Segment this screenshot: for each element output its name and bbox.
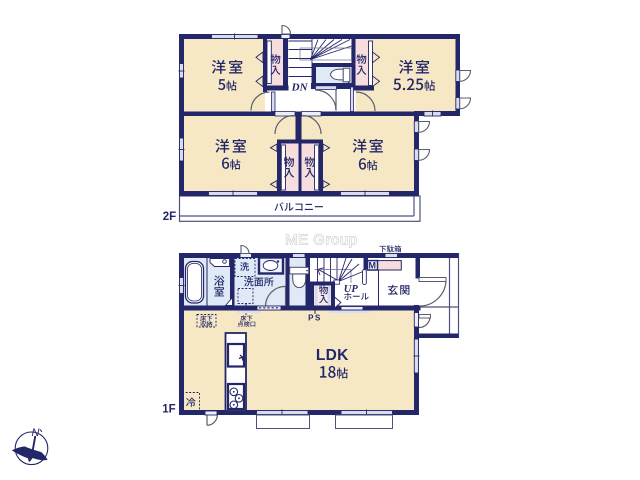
svg-text:LDK: LDK <box>316 347 349 364</box>
svg-text:DN: DN <box>291 82 309 94</box>
svg-text:ME Group: ME Group <box>285 232 357 249</box>
svg-text:1F: 1F <box>162 404 175 416</box>
svg-text:PS: PS <box>308 314 322 323</box>
svg-text:2F: 2F <box>163 211 176 223</box>
svg-text:M: M <box>369 260 377 270</box>
svg-text:UP: UP <box>344 284 359 295</box>
